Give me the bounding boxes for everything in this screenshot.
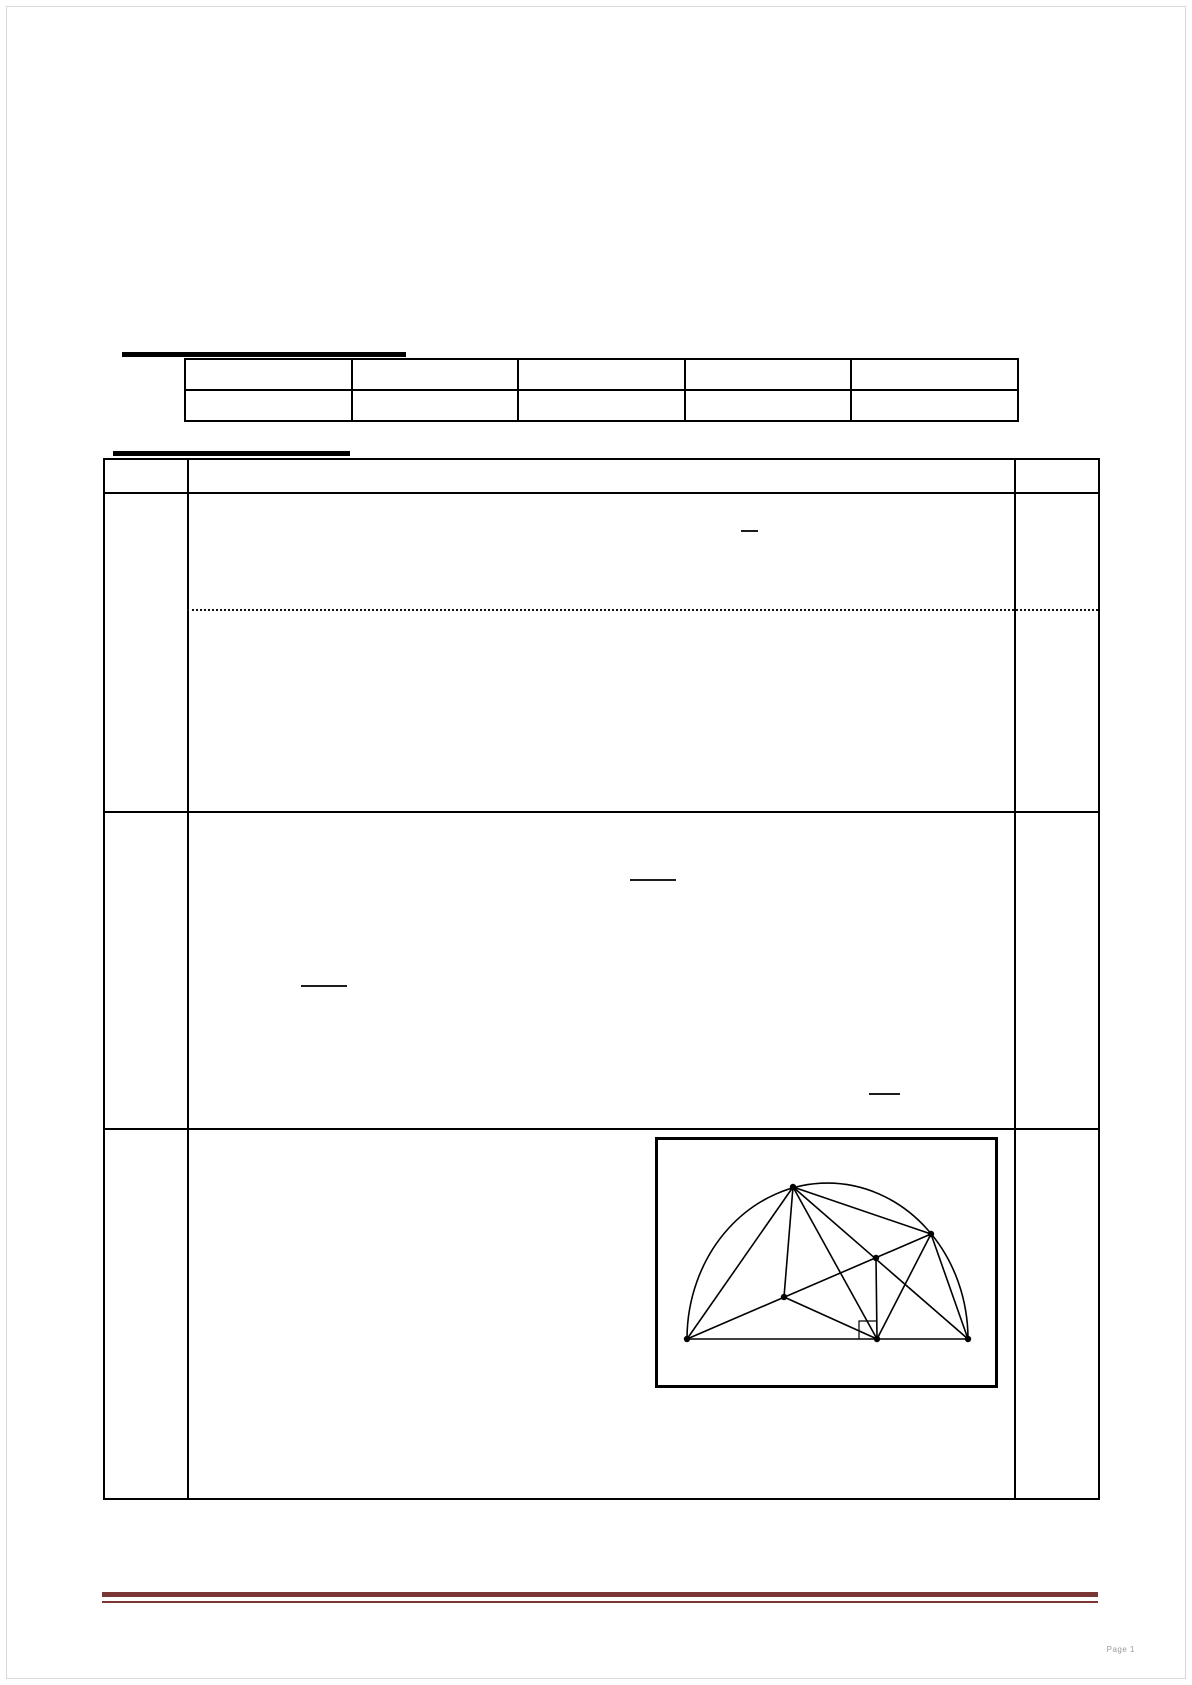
segment-FB	[876, 1258, 877, 1339]
footer-rule-thin	[102, 1601, 1098, 1603]
page-number: Page 1	[1030, 1645, 1135, 1654]
header-row-divider	[105, 492, 1098, 494]
grade-cell	[352, 359, 519, 390]
segment-DG	[784, 1187, 793, 1297]
segment-EB	[877, 1234, 931, 1339]
grade-cell	[518, 390, 685, 421]
vertex-G	[781, 1294, 787, 1300]
vertex-A	[684, 1336, 690, 1342]
vertex-F	[873, 1255, 879, 1261]
grade-cell	[685, 390, 852, 421]
semicircle-arc	[687, 1183, 968, 1339]
vertex-C	[965, 1336, 971, 1342]
worksheet-page: Page 1	[0, 0, 1192, 1685]
grade-table-body	[185, 359, 1018, 421]
fraction-bar	[630, 879, 676, 881]
heading-underline-tasks	[113, 451, 350, 456]
footer-rule-thick	[102, 1592, 1098, 1597]
row-divider-2	[105, 1128, 1098, 1130]
column-divider-left	[187, 460, 189, 1498]
fraction-bar	[301, 985, 347, 987]
grade-cell	[185, 359, 352, 390]
vertex-B	[874, 1336, 880, 1342]
grade-cell	[518, 359, 685, 390]
grade-cell	[685, 359, 852, 390]
fraction-bar	[869, 1093, 900, 1095]
row-divider-1	[105, 811, 1098, 813]
heading-underline-top	[122, 352, 406, 357]
column-divider-right	[1014, 460, 1016, 1498]
segment-GB	[784, 1297, 877, 1339]
grade-cell	[851, 359, 1018, 390]
grade-table	[184, 358, 1019, 422]
segment-DE	[793, 1187, 931, 1234]
grade-cell	[352, 390, 519, 421]
fraction-bar	[741, 530, 758, 532]
geometry-figure	[657, 1139, 998, 1388]
dotted-separator	[187, 609, 1098, 611]
grade-cell	[851, 390, 1018, 421]
vertex-E	[928, 1231, 934, 1237]
vertex-D	[790, 1184, 796, 1190]
grade-cell	[185, 390, 352, 421]
